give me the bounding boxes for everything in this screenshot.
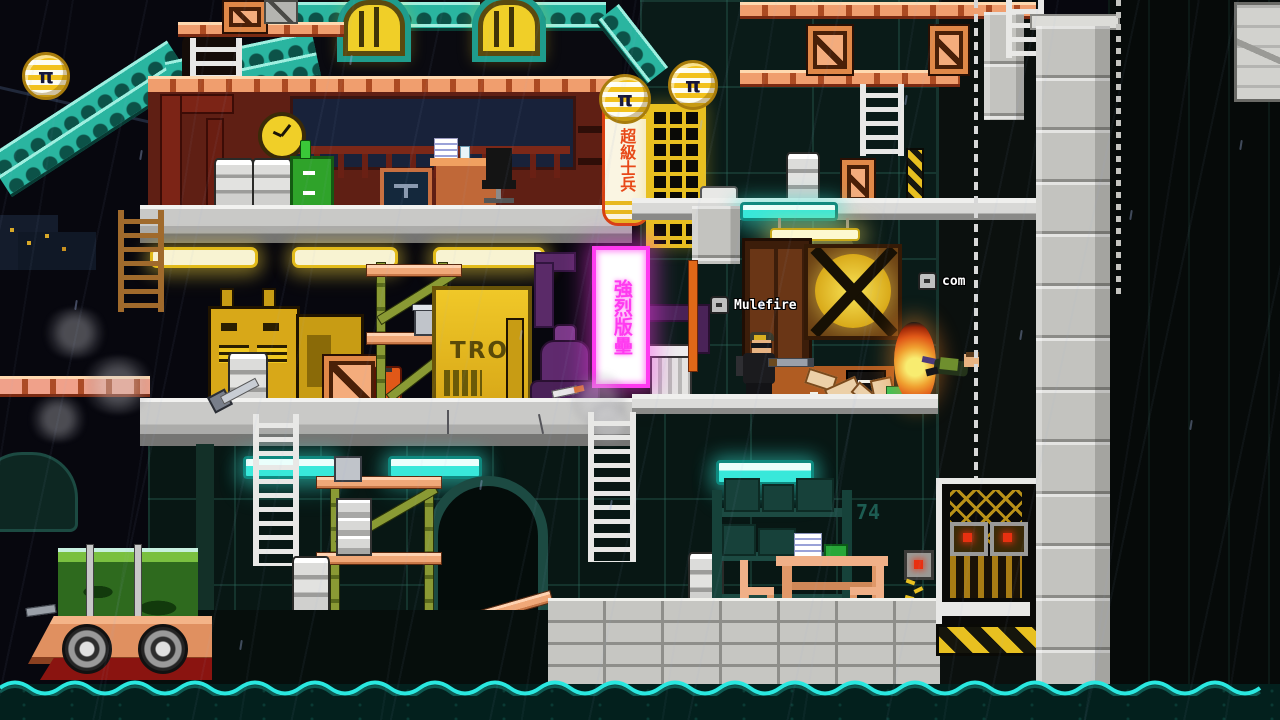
player-com[interactable]	[922, 346, 982, 392]
scaffold-pole	[424, 482, 434, 616]
ladder[interactable]	[253, 414, 299, 566]
elevator-band	[942, 602, 1030, 616]
far-right-wall	[1108, 0, 1280, 690]
purple-pipe	[534, 262, 554, 328]
coin[interactable]: π	[22, 52, 70, 100]
soldier-visor	[751, 343, 772, 348]
scaffold-plank	[366, 264, 462, 277]
ladder[interactable]	[118, 210, 164, 312]
round-x-window-frame	[804, 244, 902, 340]
platform-floor2	[140, 205, 632, 243]
billboard-pillar	[506, 318, 524, 404]
fluorescent-light-yellow	[150, 247, 258, 268]
wall-clock	[258, 112, 306, 160]
pistol[interactable]	[26, 604, 57, 617]
nametag-mulefire: Mulefire	[710, 296, 797, 314]
crate	[806, 24, 854, 76]
crate	[222, 0, 268, 34]
hazard-stripe-base	[936, 624, 1042, 656]
scaffold-plank	[316, 552, 442, 565]
filing-cabinet	[290, 156, 334, 212]
wall-number: 74	[856, 500, 880, 524]
billboard-text: TRO	[450, 338, 509, 364]
raindrop	[139, 150, 143, 160]
crate	[928, 24, 970, 76]
neon-sign-pink-text: 強烈版壘	[610, 279, 632, 355]
floor-crack	[447, 410, 449, 434]
dormer-window	[478, 0, 540, 56]
supply-crate-white	[1234, 2, 1280, 102]
city-window	[62, 247, 66, 251]
red-eye-light	[963, 533, 972, 542]
stone-blocks	[692, 206, 740, 264]
city-window	[10, 228, 14, 232]
elevator-cable	[974, 0, 978, 480]
boat	[0, 530, 230, 700]
control-panel[interactable]	[904, 550, 934, 580]
stone-column	[1036, 26, 1110, 688]
nametag-label: Mulefire	[734, 298, 797, 313]
storage-tank	[0, 452, 78, 532]
city-silhouette	[18, 232, 96, 270]
dormer-window	[343, 0, 405, 56]
dormer-bar	[374, 7, 379, 47]
orange-pipe	[688, 260, 698, 372]
elevator-window	[990, 522, 1028, 556]
dormer-bar	[494, 11, 499, 47]
storage-box	[796, 478, 834, 512]
billboard-block	[444, 370, 482, 396]
ladder[interactable]	[860, 84, 904, 156]
window-rail	[290, 146, 570, 154]
elevator-window	[950, 522, 988, 556]
supply-box	[264, 0, 298, 24]
coin[interactable]: π	[668, 60, 718, 110]
can-stack	[336, 498, 372, 556]
red-button[interactable]	[914, 560, 923, 569]
office-chair	[480, 146, 524, 204]
roof-ridge-tiles	[394, 2, 480, 31]
smoke-puff	[26, 396, 90, 442]
dormer-bar	[359, 11, 364, 47]
storage-box	[758, 528, 796, 556]
tarp-load	[58, 548, 198, 626]
ladder[interactable]	[588, 412, 636, 562]
coin-symbol: π	[617, 87, 633, 111]
barrel	[214, 158, 254, 210]
frame-table-icon	[404, 188, 408, 198]
coin-symbol: π	[685, 73, 701, 97]
walkway-light-cyan	[740, 202, 838, 221]
storage-box	[762, 484, 794, 512]
storage-box	[722, 524, 756, 556]
platform-floor3-right	[632, 394, 938, 414]
nametag-com: com	[918, 272, 965, 290]
chain	[1116, 0, 1121, 295]
city-window	[27, 241, 31, 245]
city-window	[45, 234, 49, 238]
boat-wheel	[62, 624, 112, 674]
com-vest	[939, 357, 958, 371]
wall-pipe	[160, 94, 182, 210]
smoke-puff	[78, 356, 158, 414]
bottle	[300, 140, 311, 159]
rifle	[768, 358, 814, 367]
red-eye-light	[1003, 533, 1012, 542]
dormer-bar	[509, 7, 514, 47]
barrel	[252, 158, 292, 210]
bucket	[334, 456, 362, 482]
player-mulefire[interactable]	[734, 326, 814, 402]
elevator-bars	[950, 556, 1022, 598]
game-viewport[interactable]: TRO 超級士兵 強烈版壘 π π π	[0, 0, 1280, 720]
coin-symbol: π	[38, 64, 54, 88]
boat-wheel	[138, 624, 188, 674]
com-leg	[925, 367, 938, 377]
smoke-puff	[40, 308, 110, 358]
neon-sign-pink: 強烈版壘	[592, 246, 650, 388]
helmet-icon	[918, 272, 937, 290]
nametag-label: com	[942, 274, 965, 289]
helmet-icon	[710, 296, 729, 314]
barrel	[292, 556, 330, 616]
storage-box	[724, 478, 760, 512]
elevator-car[interactable]	[936, 478, 1048, 636]
clock-hand	[273, 131, 282, 138]
coin[interactable]: π	[599, 74, 651, 124]
sign-super-soldier-text: 超級士兵	[617, 128, 635, 192]
